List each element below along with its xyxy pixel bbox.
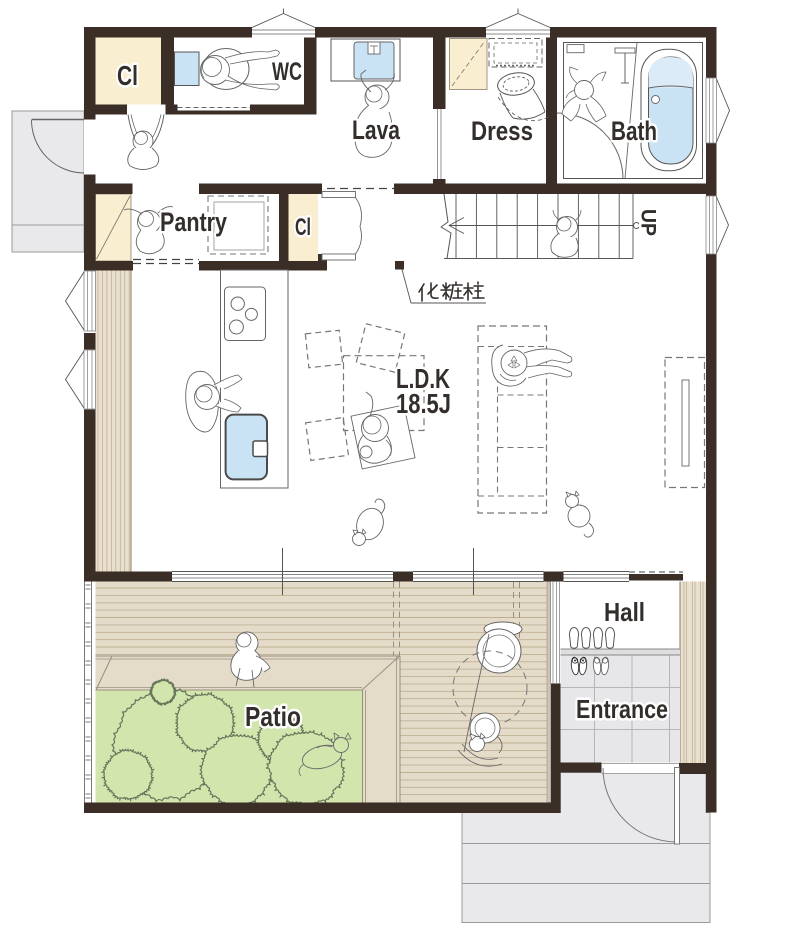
svg-text:Cl: Cl (295, 214, 311, 241)
svg-text:Patio: Patio (245, 701, 301, 732)
svg-text:Bath: Bath (611, 116, 657, 146)
svg-text:Pantry: Pantry (160, 207, 227, 237)
svg-text:Hall: Hall (604, 597, 645, 627)
svg-text:Entrance: Entrance (576, 694, 668, 724)
svg-text:Dress: Dress (471, 116, 533, 146)
svg-text:Cl: Cl (117, 60, 138, 91)
svg-text:UP: UP (637, 209, 660, 236)
svg-text:18.5J: 18.5J (396, 388, 451, 419)
svg-text:WC: WC (272, 58, 302, 86)
svg-text:Lava: Lava (352, 115, 401, 145)
